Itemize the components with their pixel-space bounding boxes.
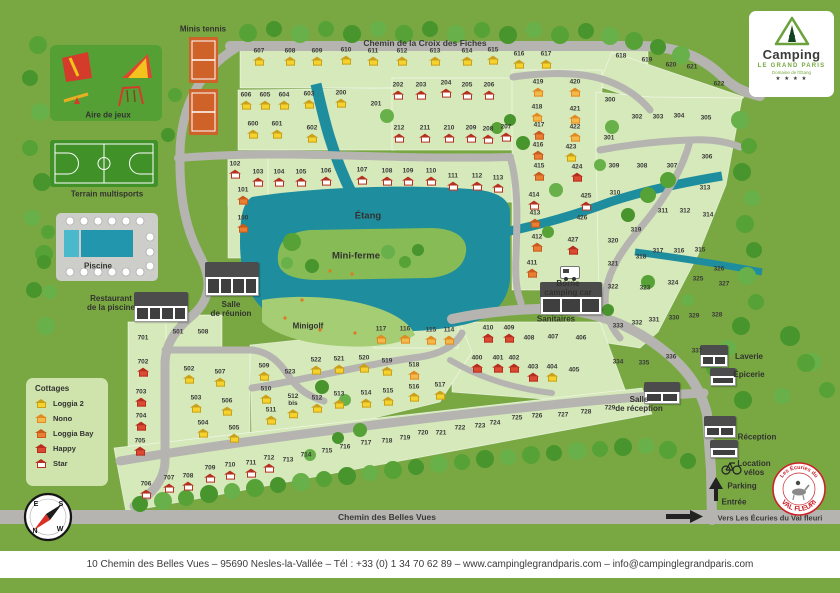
tree-icon — [41, 225, 55, 239]
camper-van-icon — [560, 266, 580, 279]
tree-icon — [332, 432, 344, 444]
label-sanitaires: Sanitaires — [537, 314, 575, 323]
tree-icon — [200, 485, 218, 503]
footer-bar: 10 Chemin des Belles Vues – 95690 Nesles… — [0, 551, 840, 578]
logo-name: LE GRAND PARIS — [758, 63, 826, 69]
legend-item-loggia-2: Loggia 2 — [35, 398, 108, 408]
tree-icon — [338, 467, 356, 485]
tree-icon — [132, 496, 148, 512]
legend-items: Loggia 2NonoLoggia BayHappyStar — [35, 398, 108, 468]
tree-icon — [474, 22, 490, 38]
tree-icon — [43, 285, 57, 299]
tree-icon — [339, 394, 351, 406]
logo-brand: Camping — [763, 47, 821, 62]
tree-icon — [734, 391, 752, 409]
tree-icon — [168, 88, 182, 102]
tree-icon — [399, 256, 411, 268]
legend-item-star: Star — [35, 458, 108, 468]
legend-title: Cottages — [35, 384, 108, 393]
tree-icon — [292, 473, 310, 491]
legend-item-label: Happy — [53, 444, 76, 453]
tree-icon — [499, 26, 517, 44]
label-laverie-epicerie: Laverie Épicerie — [733, 352, 764, 380]
footer-address: 10 Chemin des Belles Vues – 95690 Nesles… — [87, 559, 754, 570]
label-aire-de-jeux: Aire de jeux — [85, 110, 130, 119]
tree-icon — [546, 445, 562, 461]
tree-icon — [732, 317, 750, 335]
label-piscine: Piscine — [84, 261, 112, 270]
tree-icon — [733, 163, 751, 181]
tree-icon — [659, 441, 677, 459]
tree-icon — [304, 449, 316, 461]
building-restaurant — [134, 292, 188, 322]
tree-icon — [491, 122, 503, 134]
tree-icon — [246, 479, 264, 497]
tree-icon — [266, 21, 282, 37]
tent-eiffel-icon — [774, 16, 810, 46]
legend-item-happy: Happy — [35, 443, 108, 453]
legend-item-label: Loggia 2 — [53, 399, 84, 408]
tree-icon — [797, 354, 815, 372]
building-laverie — [700, 345, 728, 367]
tree-icon — [744, 190, 760, 206]
tree-icon — [362, 465, 378, 481]
tree-icon — [430, 455, 448, 473]
tree-icon — [154, 492, 172, 510]
tree-icon — [650, 39, 666, 55]
building-reception-annex — [710, 440, 738, 458]
tree-icon — [380, 109, 394, 123]
tree-icon — [660, 172, 676, 188]
tree-icon — [161, 128, 175, 142]
compass-letter-E: E — [34, 501, 39, 508]
tree-icon — [680, 453, 696, 469]
label-borne-camping-car: Borne camping car — [544, 279, 591, 297]
building-epicerie — [710, 368, 736, 386]
tree-icon — [602, 304, 614, 316]
cottages-legend: Cottages Loggia 2NonoLoggia BayHappyStar — [26, 378, 108, 486]
tree-icon — [522, 446, 540, 464]
tree-icon — [31, 103, 49, 121]
tree-icon — [605, 120, 619, 134]
label-restaurant-piscine: Restaurant de la piscine — [87, 294, 135, 312]
horse-icon — [792, 489, 806, 496]
tree-icon — [343, 25, 361, 43]
tree-icon — [22, 140, 38, 156]
tree-icon — [780, 326, 800, 346]
tree-icon — [516, 136, 530, 150]
tree-icon — [29, 36, 47, 54]
tree-icon — [37, 255, 51, 269]
tree-icon — [682, 294, 694, 306]
label-parking: Parking — [727, 481, 756, 490]
tree-icon — [614, 438, 632, 456]
tree-icon — [551, 26, 569, 44]
tree-icon — [281, 257, 293, 269]
label-etang: Étang — [355, 212, 381, 223]
legend-item-nono: Nono — [35, 413, 108, 423]
tree-icon — [178, 490, 194, 506]
label-chemin-des-belles-vues: Chemin des Belles Vues — [338, 512, 436, 522]
val-fleuri-logo: Les Écuries du VAL FLEURI — [771, 461, 827, 517]
tree-icon — [741, 138, 757, 154]
campground-map: ESNW 60760860961061161261361461561661761… — [0, 0, 840, 593]
tree-icon — [736, 215, 754, 233]
rider-icon — [796, 481, 800, 485]
tree-icon — [621, 208, 635, 222]
tree-icon — [748, 294, 764, 310]
tree-icon — [638, 438, 654, 454]
tree-icon — [24, 210, 40, 226]
tree-icon — [578, 23, 594, 39]
tree-icon — [625, 32, 643, 50]
label-location-velos: Location vélos — [737, 459, 770, 477]
legend-item-label: Star — [53, 459, 68, 468]
tree-icon — [568, 442, 586, 460]
tree-icon — [422, 21, 438, 37]
logo-tagline: Domaine de l'Étang — [772, 70, 811, 75]
label-mini-ferme: Mini-ferme — [332, 252, 380, 263]
label-minigolf: Minigolf — [293, 321, 324, 330]
tree-icon — [408, 459, 424, 475]
cottage-icon — [35, 444, 47, 453]
tree-icon — [641, 275, 655, 289]
tree-icon — [731, 111, 749, 129]
tree-icon — [305, 259, 319, 273]
legend-item-label: Nono — [53, 414, 72, 423]
legend-item-label: Loggia Bay — [53, 429, 93, 438]
compass-rose: ESNW — [25, 494, 71, 540]
tree-icon — [22, 70, 38, 86]
tree-icon — [819, 382, 835, 398]
tree-icon — [746, 242, 762, 258]
tree-icon — [353, 423, 367, 437]
tree-icon — [33, 173, 51, 191]
building-reception — [704, 416, 736, 438]
tree-icon — [504, 114, 516, 126]
exit-arrow-right-icon — [666, 514, 690, 519]
tree-icon — [594, 159, 606, 171]
tree-icon — [549, 183, 563, 197]
tree-icon — [224, 483, 240, 499]
cottage-icon — [35, 459, 47, 468]
tree-icon — [291, 25, 309, 43]
label-reception: Réception — [738, 432, 777, 441]
tree-icon — [283, 233, 301, 251]
tree-icon — [412, 244, 424, 256]
tree-icon — [239, 24, 257, 42]
tree-icon — [542, 226, 554, 238]
tree-icon — [316, 471, 332, 487]
pool — [56, 213, 158, 281]
tree-icon — [500, 449, 516, 465]
building-salle-de-reunion — [205, 262, 259, 296]
label-salle-de-reunion: Salle de réunion — [211, 300, 252, 318]
tree-icon — [601, 27, 619, 45]
cottage-icon — [35, 414, 47, 423]
label-terrain-multisports: Terrain multisports — [71, 189, 143, 198]
tree-icon — [640, 187, 656, 203]
cottage-icon — [35, 399, 47, 408]
label-salle-de-reception: Salle de réception — [615, 395, 663, 413]
tree-icon — [774, 388, 790, 404]
tree-icon — [672, 46, 690, 64]
tree-icon — [315, 380, 329, 394]
compass-letter-W: W — [57, 526, 64, 533]
tree-icon — [370, 21, 386, 37]
tree-icon — [526, 22, 542, 38]
tree-icon — [738, 267, 756, 285]
logo-stars: ★ ★ ★ ★ — [776, 76, 808, 82]
cottage-icon — [35, 429, 47, 438]
tree-icon — [26, 282, 42, 298]
tree-icon — [270, 477, 286, 493]
label-chemin-croix-des-fiches: Chemin de la Croix des Fiches — [363, 38, 486, 48]
compass-letter-S: S — [59, 501, 64, 508]
tree-icon — [37, 317, 55, 335]
tree-icon — [592, 441, 608, 457]
tree-icon — [454, 454, 470, 470]
tree-icon — [381, 245, 395, 259]
tree-icon — [384, 461, 402, 479]
camping-logo: Camping LE GRAND PARIS Domaine de l'Étan… — [749, 11, 834, 97]
label-entree: Entrée — [722, 497, 747, 506]
legend-item-loggia-bay: Loggia Bay — [35, 428, 108, 438]
multisport-court — [50, 140, 158, 187]
tree-icon — [318, 21, 334, 37]
tree-icon — [476, 450, 494, 468]
compass-letter-N: N — [32, 528, 37, 535]
label-minis-tennis: Minis tennis — [180, 24, 226, 33]
